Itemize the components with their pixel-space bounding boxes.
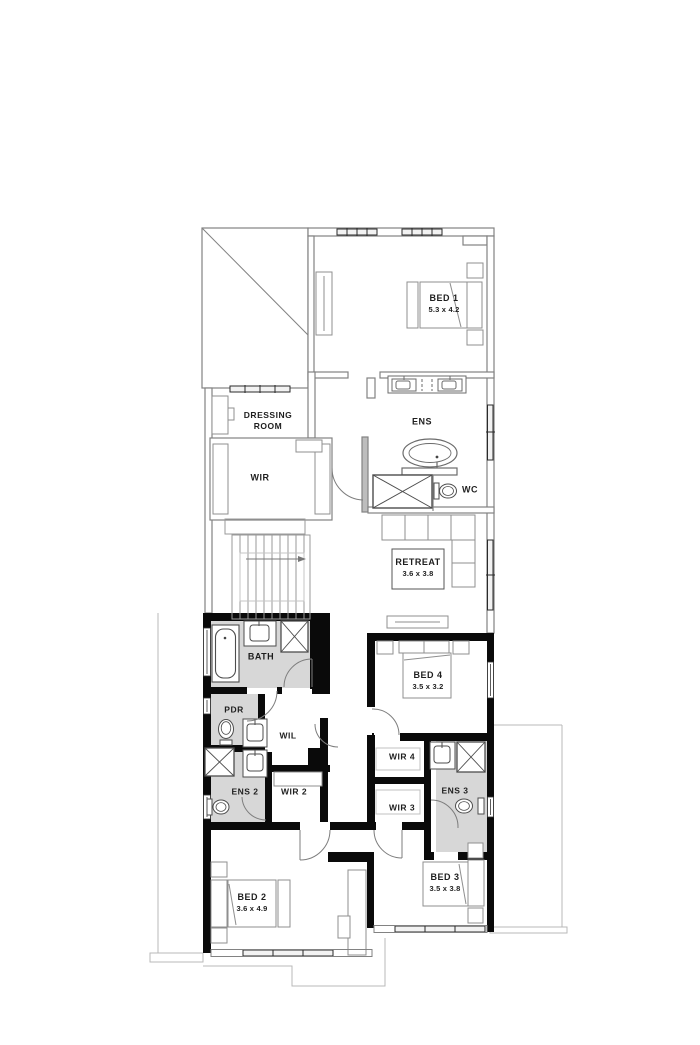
- wc-toilet-icon: [434, 483, 457, 499]
- room-label-wir4: WIR 4: [389, 752, 415, 763]
- bath-vanity-icon: [244, 621, 276, 646]
- stair-direction-arrow: [298, 556, 306, 562]
- console-table: [387, 616, 448, 628]
- ens2-toilet-icon: [207, 799, 229, 815]
- ens3-shower-icon: [457, 742, 485, 772]
- bath-shower-icon: [281, 621, 308, 652]
- bed4-door-arc: [372, 709, 399, 735]
- bathtub-icon: [212, 625, 239, 682]
- floor-plan-canvas: BED 1 5.3 x 4.2 DRESSING ROOM WIR ENS WC…: [0, 0, 700, 1045]
- room-label-retreat: RETREAT 3.6 x 3.8: [395, 557, 440, 579]
- room-label-bed4: BED 4 3.5 x 3.2: [413, 670, 444, 692]
- bed2-door-arc: [300, 830, 330, 860]
- room-label-wir2: WIR 2: [281, 787, 307, 798]
- desk-icon: [338, 870, 366, 955]
- room-label-ens3: ENS 3: [441, 786, 468, 797]
- ens2-basin-icon: [243, 750, 267, 777]
- double-vanity-icon: [388, 376, 466, 393]
- floor-plan-drawing: [0, 0, 700, 1045]
- room-label-wil: WIL: [279, 731, 296, 742]
- freestanding-bath-icon: [402, 439, 457, 475]
- room-label-ens: ENS: [412, 417, 432, 428]
- room-label-bed3: BED 3 3.5 x 3.8: [430, 872, 461, 894]
- ens2-shower-icon: [205, 748, 234, 776]
- ens3-basin-icon: [430, 742, 455, 769]
- room-label-wir3: WIR 3: [389, 803, 415, 814]
- room-label-pdr: PDR: [224, 705, 243, 716]
- pdr-toilet-icon: [219, 720, 234, 746]
- pdr-basin-icon: [243, 719, 267, 747]
- wir2-shelf: [274, 772, 322, 786]
- room-label-bed1: BED 1 5.3 x 4.2: [429, 293, 460, 315]
- stairs: [225, 519, 310, 619]
- ens3-toilet-icon: [456, 798, 485, 814]
- ens-shower-icon: [373, 475, 432, 508]
- room-label-wir: WIR: [251, 473, 270, 484]
- room-label-dressing-room: DRESSING ROOM: [244, 410, 292, 432]
- room-label-bed2: BED 2 3.6 x 4.9: [237, 892, 268, 914]
- room-label-ens2: ENS 2: [231, 787, 258, 798]
- room-label-wc: WC: [462, 485, 478, 496]
- room-label-bath: BATH: [248, 652, 274, 663]
- wir-ens-door-arc: [332, 468, 363, 500]
- bed3-door-arc: [374, 830, 402, 858]
